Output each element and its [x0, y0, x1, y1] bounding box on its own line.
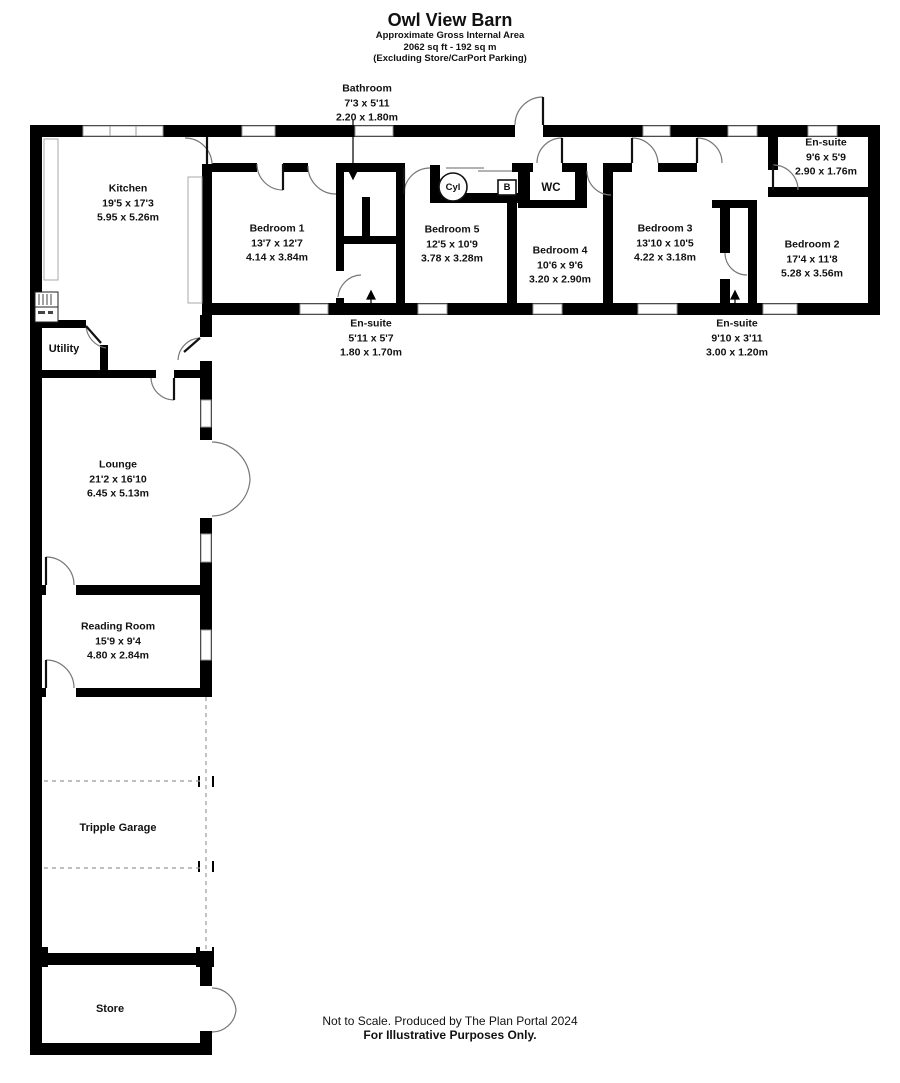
room-name: Bedroom 5	[421, 222, 483, 237]
room-name: Bedroom 2	[781, 237, 843, 252]
room-name: Lounge	[87, 457, 149, 472]
room-name: Cyl	[446, 182, 461, 194]
room-name: En-suite	[340, 316, 402, 331]
room-dims-metric: 4.22 x 3.18m	[634, 250, 696, 265]
room-label-bedroom3: Bedroom 3 13'10 x 10'5 4.22 x 3.18m	[634, 221, 696, 265]
footer-disclaimer: Not to Scale. Produced by The Plan Porta…	[0, 1014, 900, 1028]
room-name: En-suite	[706, 316, 768, 331]
room-label-bedroom4: Bedroom 4 10'6 x 9'6 3.20 x 2.90m	[529, 243, 591, 287]
room-name: Reading Room	[81, 619, 155, 634]
room-dims-metric: 5.95 x 5.26m	[97, 210, 159, 225]
title-block: Owl View Barn Approximate Gross Internal…	[0, 10, 900, 65]
room-label-kitchen: Kitchen 19'5 x 17'3 5.95 x 5.26m	[97, 181, 159, 225]
room-dims-metric: 4.80 x 2.84m	[81, 648, 155, 663]
room-label-cyl: Cyl	[446, 182, 461, 194]
room-label-garage: Tripple Garage	[79, 822, 156, 834]
room-dims-imperial: 19'5 x 17'3	[97, 196, 159, 211]
title-subtitle: Approximate Gross Internal Area	[0, 30, 900, 42]
room-dims-metric: 2.90 x 1.76m	[795, 164, 857, 179]
room-name: Bedroom 1	[246, 221, 308, 236]
room-dims-imperial: 9'10 x 3'11	[706, 331, 768, 346]
room-name: B	[504, 182, 511, 194]
title-area: 2062 sq ft - 192 sq m	[0, 42, 900, 54]
room-name: Utility	[49, 343, 80, 355]
room-dims-imperial: 17'4 x 11'8	[781, 252, 843, 267]
room-name: Bedroom 3	[634, 221, 696, 236]
room-dims-metric: 3.20 x 2.90m	[529, 272, 591, 287]
room-dims-imperial: 9'6 x 5'9	[795, 150, 857, 165]
room-dims-metric: 6.45 x 5.13m	[87, 486, 149, 501]
room-dims-imperial: 15'9 x 9'4	[81, 634, 155, 649]
room-dims-metric: 1.80 x 1.70m	[340, 345, 402, 360]
room-dims-imperial: 13'7 x 12'7	[246, 236, 308, 251]
room-name: Bathroom	[336, 81, 398, 96]
room-dims-imperial: 10'6 x 9'6	[529, 258, 591, 273]
footer-illustrative-note: For Illustrative Purposes Only.	[0, 1028, 900, 1043]
room-dims-metric: 2.20 x 1.80m	[336, 110, 398, 125]
room-label-bathroom: Bathroom 7'3 x 5'11 2.20 x 1.80m	[336, 81, 398, 125]
room-dims-imperial: 21'2 x 16'10	[87, 472, 149, 487]
room-dims-metric: 3.00 x 1.20m	[706, 345, 768, 360]
page-title: Owl View Barn	[0, 10, 900, 30]
title-note: (Excluding Store/CarPort Parking)	[0, 53, 900, 65]
room-label-reading-room: Reading Room 15'9 x 9'4 4.80 x 2.84m	[81, 619, 155, 663]
room-name: Kitchen	[97, 181, 159, 196]
room-dims-metric: 3.78 x 3.28m	[421, 251, 483, 266]
room-label-bedroom2: Bedroom 2 17'4 x 11'8 5.28 x 3.56m	[781, 237, 843, 281]
room-label-boiler: B	[504, 182, 511, 194]
room-name: Tripple Garage	[79, 822, 156, 834]
room-label-wc: WC	[541, 182, 560, 194]
room-label-utility: Utility	[49, 343, 80, 355]
room-label-bedroom1: Bedroom 1 13'7 x 12'7 4.14 x 3.84m	[246, 221, 308, 265]
room-label-lounge: Lounge 21'2 x 16'10 6.45 x 5.13m	[87, 457, 149, 501]
room-label-ensuite-right: En-suite 9'10 x 3'11 3.00 x 1.20m	[706, 316, 768, 360]
room-label-ensuite-top: En-suite 9'6 x 5'9 2.90 x 1.76m	[795, 135, 857, 179]
room-dims-imperial: 7'3 x 5'11	[336, 96, 398, 111]
room-dims-imperial: 5'11 x 5'7	[340, 331, 402, 346]
room-name: Bedroom 4	[529, 243, 591, 258]
room-name: WC	[541, 182, 560, 194]
room-name: En-suite	[795, 135, 857, 150]
floor-plan-drawing	[0, 0, 900, 1083]
room-dims-imperial: 13'10 x 10'5	[634, 236, 696, 251]
appliance-icon	[35, 292, 58, 322]
room-dims-metric: 4.14 x 3.84m	[246, 250, 308, 265]
footer: Not to Scale. Produced by The Plan Porta…	[0, 1014, 900, 1043]
room-label-bedroom5: Bedroom 5 12'5 x 10'9 3.78 x 3.28m	[421, 222, 483, 266]
room-label-ensuite-left: En-suite 5'11 x 5'7 1.80 x 1.70m	[340, 316, 402, 360]
room-dims-imperial: 12'5 x 10'9	[421, 237, 483, 252]
room-dims-metric: 5.28 x 3.56m	[781, 266, 843, 281]
floor-plan: Owl View Barn Approximate Gross Internal…	[0, 0, 900, 1083]
